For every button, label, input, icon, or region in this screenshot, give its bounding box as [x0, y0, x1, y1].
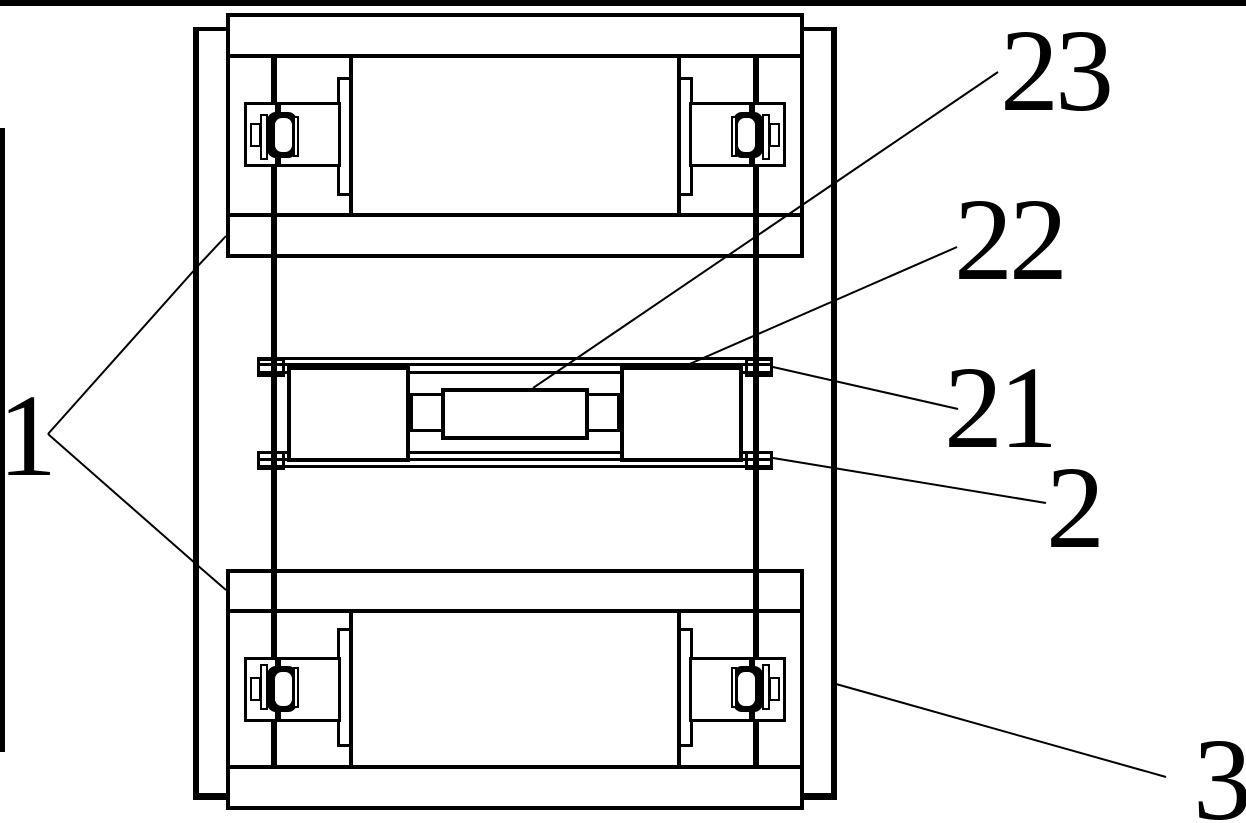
leader-line-23 [533, 72, 998, 388]
leader-line-21 [773, 367, 958, 409]
leader-lines [0, 0, 1246, 823]
leader-line-1-lower [48, 434, 226, 590]
leader-line-3 [836, 684, 1166, 777]
leader-line-22 [685, 247, 957, 366]
patent-figure: 1 23 22 21 2 3 [0, 0, 1246, 823]
leader-line-1-upper [48, 236, 226, 434]
leader-line-2 [773, 458, 1046, 503]
